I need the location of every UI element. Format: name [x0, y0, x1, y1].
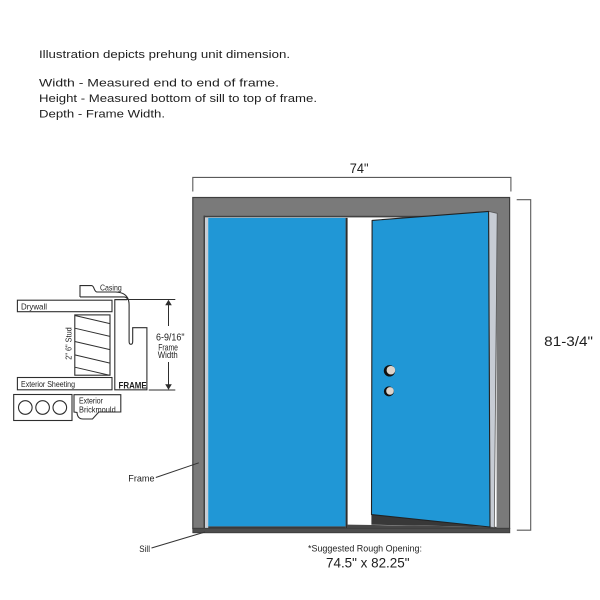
svg-text:81-3/4": 81-3/4"	[544, 333, 593, 349]
svg-text:Width - Measured end to end of: Width - Measured end to end of frame.	[39, 78, 279, 90]
svg-text:*Suggested Rough Opening:: *Suggested Rough Opening:	[308, 543, 422, 554]
svg-text:Width: Width	[158, 350, 178, 361]
svg-text:74": 74"	[350, 160, 369, 176]
svg-text:Frame: Frame	[128, 473, 154, 484]
svg-text:Brickmould: Brickmould	[79, 405, 116, 415]
svg-text:Depth - Frame Width.: Depth - Frame Width.	[39, 109, 165, 121]
svg-text:2" 6" Stud: 2" 6" Stud	[63, 327, 73, 360]
svg-text:Height - Measured bottom of si: Height - Measured bottom of sill to top …	[39, 93, 317, 105]
svg-text:FRAME: FRAME	[119, 381, 147, 391]
svg-text:Exterior Sheeting: Exterior Sheeting	[21, 379, 75, 389]
svg-text:Drywall: Drywall	[21, 302, 47, 312]
svg-text:Illustration depicts prehung u: Illustration depicts prehung unit dimens…	[39, 49, 290, 61]
svg-text:Sill: Sill	[139, 544, 150, 555]
svg-text:Casing: Casing	[100, 283, 122, 293]
svg-text:74.5" x 82.25": 74.5" x 82.25"	[326, 555, 410, 571]
